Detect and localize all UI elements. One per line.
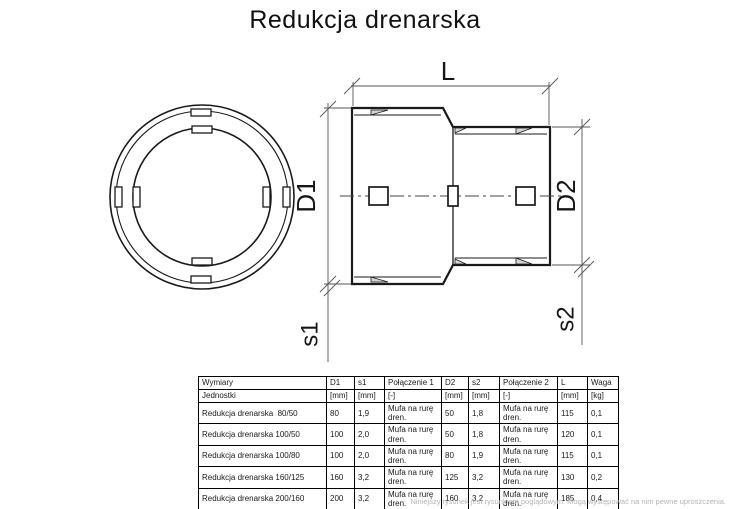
drawing-sheet: Redukcja drenarska bbox=[0, 0, 730, 509]
product-name-cell: Redukcja drenarska 200/160 bbox=[199, 488, 327, 509]
label-s2: s2 bbox=[553, 306, 580, 331]
value-cell: 100 bbox=[327, 424, 355, 445]
value-cell: 50 bbox=[442, 403, 469, 424]
unit-cell: [mm] bbox=[442, 390, 469, 403]
unit-cell: [kg] bbox=[588, 390, 619, 403]
value-cell: Mufa na rurę dren. bbox=[385, 445, 442, 466]
value-cell: Mufa na rurę dren. bbox=[385, 467, 442, 488]
col-header: Waga bbox=[588, 377, 619, 390]
value-cell: Mufa na rurę dren. bbox=[385, 424, 442, 445]
value-cell: 3,2 bbox=[355, 467, 385, 488]
dimension-d1-s1 bbox=[320, 101, 351, 362]
unit-cell: [mm] bbox=[355, 390, 385, 403]
value-cell: Mufa na rurę dren. bbox=[385, 403, 442, 424]
value-cell: Mufa na rurę dren. bbox=[500, 424, 558, 445]
value-cell: 200 bbox=[327, 488, 355, 509]
unit-cell: [mm] bbox=[469, 390, 500, 403]
label-d2: D2 bbox=[551, 179, 581, 212]
outer-inner-circle bbox=[116, 111, 288, 283]
value-cell: 125 bbox=[442, 467, 469, 488]
value-cell: 115 bbox=[558, 403, 588, 424]
col-header: Połączenie 2 bbox=[500, 377, 558, 390]
label-length: L bbox=[441, 56, 455, 86]
value-cell: 1,8 bbox=[469, 403, 500, 424]
table-row: Redukcja drenarska 100/801002,0Mufa na r… bbox=[199, 445, 619, 466]
product-name-cell: Redukcja drenarska 100/80 bbox=[199, 445, 327, 466]
front-view bbox=[110, 105, 294, 289]
table-units-row: Jednostki [mm] [mm] [-] [mm] [mm] [-] [m… bbox=[199, 390, 619, 403]
value-cell: 2,0 bbox=[355, 445, 385, 466]
value-cell: 0,2 bbox=[588, 467, 619, 488]
value-cell: 80 bbox=[442, 445, 469, 466]
table-row: Redukcja drenarska 100/501002,0Mufa na r… bbox=[199, 424, 619, 445]
value-cell: 1,9 bbox=[355, 403, 385, 424]
technical-drawing: L D1 D2 s1 s2 bbox=[0, 0, 730, 372]
value-cell: 0,1 bbox=[588, 403, 619, 424]
label-d1: D1 bbox=[291, 179, 321, 212]
col-header: Połączenie 1 bbox=[385, 377, 442, 390]
col-header: L bbox=[558, 377, 588, 390]
footer-note: Niniejszy rysunek jest rysunkiem poglądo… bbox=[410, 497, 726, 506]
product-name-cell: Redukcja drenarska 100/50 bbox=[199, 424, 327, 445]
value-cell: 2,0 bbox=[355, 424, 385, 445]
label-s1: s1 bbox=[297, 321, 324, 346]
table-body: Redukcja drenarska 80/50801,9Mufa na rur… bbox=[199, 403, 619, 509]
table-row: Redukcja drenarska 160/1251603,2Mufa na … bbox=[199, 467, 619, 488]
table-header-row: Wymiary D1 s1 Połączenie 1 D2 s2 Połącze… bbox=[199, 377, 619, 390]
value-cell: 120 bbox=[558, 424, 588, 445]
unit-cell: [mm] bbox=[558, 390, 588, 403]
value-cell: 3,2 bbox=[469, 467, 500, 488]
value-cell: 0,1 bbox=[588, 445, 619, 466]
value-cell: 1,8 bbox=[469, 424, 500, 445]
value-cell: 115 bbox=[558, 445, 588, 466]
value-cell: 50 bbox=[442, 424, 469, 445]
value-cell: 0,1 bbox=[588, 424, 619, 445]
unit-cell: [-] bbox=[385, 390, 442, 403]
value-cell: 100 bbox=[327, 445, 355, 466]
unit-cell: [mm] bbox=[327, 390, 355, 403]
col-header: s1 bbox=[355, 377, 385, 390]
value-cell: 3,2 bbox=[355, 488, 385, 509]
col-header: Wymiary bbox=[199, 377, 327, 390]
bore-circle bbox=[133, 128, 271, 266]
value-cell: 1,9 bbox=[469, 445, 500, 466]
product-name-cell: Redukcja drenarska 80/50 bbox=[199, 403, 327, 424]
col-header: D2 bbox=[442, 377, 469, 390]
col-header: s2 bbox=[469, 377, 500, 390]
value-cell: Mufa na rurę dren. bbox=[500, 467, 558, 488]
product-name-cell: Redukcja drenarska 160/125 bbox=[199, 467, 327, 488]
value-cell: 130 bbox=[558, 467, 588, 488]
spec-table: Wymiary D1 s1 Połączenie 1 D2 s2 Połącze… bbox=[198, 376, 619, 509]
table-row: Redukcja drenarska 80/50801,9Mufa na rur… bbox=[199, 403, 619, 424]
side-view bbox=[340, 108, 562, 284]
value-cell: 160 bbox=[327, 467, 355, 488]
value-cell: 80 bbox=[327, 403, 355, 424]
value-cell: Mufa na rurę dren. bbox=[500, 445, 558, 466]
unit-cell: Jednostki bbox=[199, 390, 327, 403]
value-cell: Mufa na rurę dren. bbox=[500, 403, 558, 424]
col-header: D1 bbox=[327, 377, 355, 390]
unit-cell: [-] bbox=[500, 390, 558, 403]
